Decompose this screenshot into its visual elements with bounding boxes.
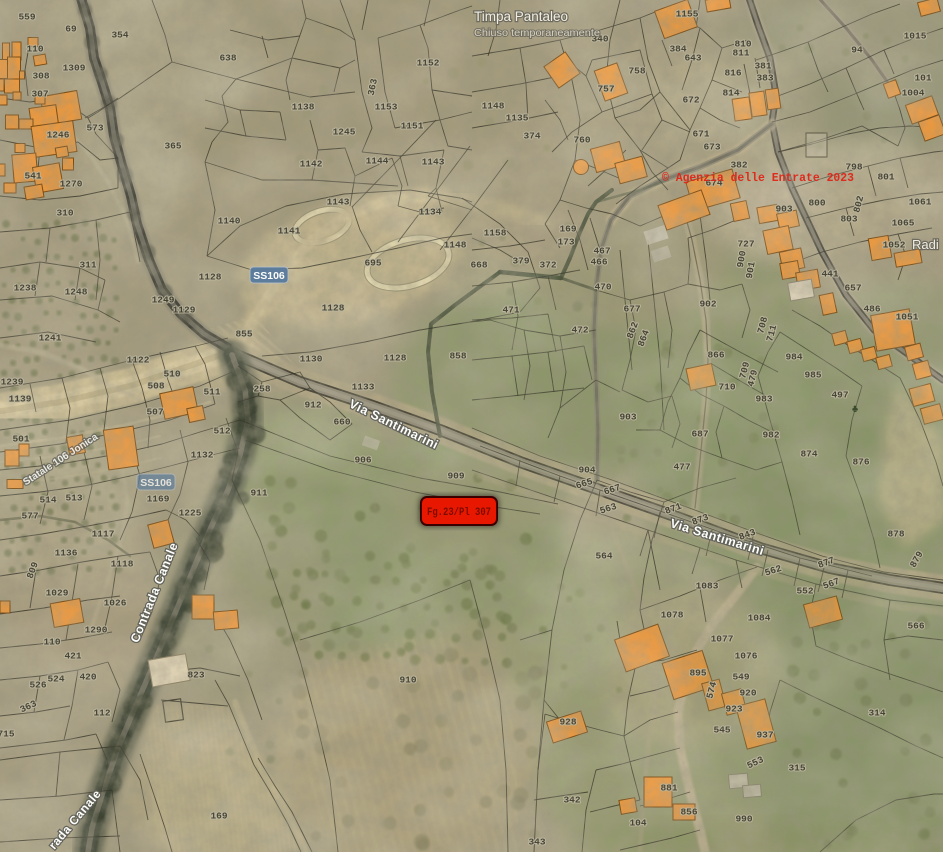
svg-text:577: 577 — [21, 510, 38, 521]
svg-text:1135: 1135 — [506, 112, 529, 123]
svg-text:687: 687 — [691, 428, 708, 439]
svg-text:904: 904 — [578, 464, 595, 475]
svg-text:SS106: SS106 — [253, 270, 285, 282]
svg-text:307: 307 — [31, 88, 48, 99]
svg-text:801: 801 — [877, 171, 894, 182]
svg-text:497: 497 — [831, 389, 848, 400]
svg-text:384: 384 — [669, 43, 686, 54]
svg-text:803: 803 — [840, 213, 857, 224]
svg-text:1122: 1122 — [127, 354, 150, 365]
svg-text:441: 441 — [821, 268, 838, 279]
svg-text:657: 657 — [844, 282, 861, 293]
svg-text:549: 549 — [732, 671, 749, 682]
svg-text:1143: 1143 — [327, 196, 350, 207]
svg-text:983: 983 — [755, 393, 772, 404]
svg-text:SS106: SS106 — [140, 477, 172, 489]
svg-text:816: 816 — [724, 67, 741, 78]
svg-text:912: 912 — [304, 399, 321, 410]
svg-text:1078: 1078 — [661, 609, 684, 620]
svg-text:1290: 1290 — [85, 624, 108, 635]
svg-text:Chiuso temporaneamente: Chiuso temporaneamente — [474, 27, 600, 39]
svg-text:110: 110 — [26, 43, 43, 54]
svg-text:677: 677 — [623, 303, 640, 314]
svg-text:1245: 1245 — [333, 126, 356, 137]
svg-text:486: 486 — [863, 303, 880, 314]
svg-text:308: 308 — [32, 70, 49, 81]
svg-text:Timpa Pantaleo: Timpa Pantaleo — [474, 9, 568, 24]
svg-text:101: 101 — [914, 72, 931, 83]
svg-text:660: 660 — [333, 416, 350, 427]
svg-text:1225: 1225 — [179, 507, 202, 518]
svg-text:1144: 1144 — [366, 155, 389, 166]
svg-text:874: 874 — [800, 448, 817, 459]
svg-text:Radi: Radi — [912, 237, 939, 252]
svg-text:878: 878 — [887, 528, 904, 539]
svg-text:990: 990 — [735, 813, 752, 824]
svg-text:671: 671 — [692, 128, 709, 139]
svg-text:1129: 1129 — [173, 304, 196, 315]
svg-text:1015: 1015 — [904, 30, 927, 41]
svg-text:467: 467 — [593, 245, 610, 256]
svg-text:1065: 1065 — [892, 217, 915, 228]
svg-text:♣: ♣ — [852, 404, 859, 416]
svg-text:758: 758 — [628, 65, 645, 76]
svg-text:Fg.23/Pl 307: Fg.23/Pl 307 — [427, 507, 491, 519]
svg-text:911: 911 — [250, 487, 267, 498]
svg-text:638: 638 — [219, 52, 236, 63]
svg-text:1084: 1084 — [748, 612, 771, 623]
svg-text:1083: 1083 — [696, 580, 719, 591]
svg-text:1151: 1151 — [401, 120, 424, 131]
svg-text:1132: 1132 — [191, 449, 214, 460]
svg-text:1128: 1128 — [322, 302, 345, 313]
svg-text:1140: 1140 — [218, 215, 241, 226]
svg-text:643: 643 — [684, 52, 701, 63]
svg-text:982: 982 — [762, 429, 779, 440]
svg-text:985: 985 — [804, 369, 821, 380]
svg-text:1148: 1148 — [444, 239, 467, 250]
svg-text:881: 881 — [660, 782, 677, 793]
svg-text:1136: 1136 — [55, 547, 78, 558]
svg-text:1029: 1029 — [46, 587, 69, 598]
svg-text:923: 923 — [725, 703, 742, 714]
svg-text:902: 902 — [699, 298, 716, 309]
svg-text:903: 903 — [775, 203, 792, 214]
svg-text:524: 524 — [47, 673, 64, 684]
svg-text:866: 866 — [707, 349, 724, 360]
svg-text:1169: 1169 — [147, 493, 170, 504]
svg-text:757: 757 — [597, 83, 614, 94]
svg-text:1143: 1143 — [422, 156, 445, 167]
svg-text:104: 104 — [629, 817, 646, 828]
svg-text:876: 876 — [852, 456, 869, 467]
svg-text:984: 984 — [785, 351, 802, 362]
svg-text:169: 169 — [559, 223, 576, 234]
svg-text:421: 421 — [64, 650, 81, 661]
svg-text:173: 173 — [557, 236, 574, 247]
svg-text:112: 112 — [93, 707, 110, 718]
svg-text:1152: 1152 — [417, 57, 440, 68]
svg-text:379: 379 — [512, 255, 529, 266]
svg-text:800: 800 — [808, 197, 825, 208]
svg-text:811: 811 — [732, 47, 749, 58]
svg-text:1141: 1141 — [278, 225, 301, 236]
svg-text:573: 573 — [86, 122, 103, 133]
svg-text:559: 559 — [18, 11, 35, 22]
svg-text:1061: 1061 — [909, 196, 932, 207]
svg-text:© Agenzia delle Entrate 2023: © Agenzia delle Entrate 2023 — [662, 171, 854, 185]
svg-text:1239: 1239 — [1, 376, 24, 387]
svg-text:1052: 1052 — [883, 239, 906, 250]
svg-text:383: 383 — [756, 72, 773, 83]
svg-text:1133: 1133 — [352, 381, 375, 392]
svg-text:1238: 1238 — [14, 282, 37, 293]
svg-text:354: 354 — [111, 29, 128, 40]
svg-text:1153: 1153 — [375, 101, 398, 112]
svg-text:814: 814 — [722, 87, 739, 98]
svg-text:311: 311 — [79, 259, 96, 270]
svg-text:1142: 1142 — [300, 158, 323, 169]
svg-text:1134: 1134 — [419, 206, 442, 217]
svg-text:374: 374 — [523, 130, 540, 141]
svg-text:668: 668 — [470, 259, 487, 270]
svg-text:69: 69 — [65, 23, 77, 34]
svg-text:508: 508 — [147, 380, 164, 391]
svg-text:1248: 1248 — [65, 286, 88, 297]
svg-text:1155: 1155 — [676, 8, 699, 19]
svg-text:760: 760 — [573, 134, 590, 145]
svg-text:94: 94 — [851, 44, 863, 55]
svg-text:541: 541 — [24, 170, 41, 181]
svg-text:1309: 1309 — [63, 62, 86, 73]
svg-text:514: 514 — [39, 494, 56, 505]
svg-text:1051: 1051 — [896, 311, 919, 322]
svg-text:920: 920 — [739, 687, 756, 698]
svg-text:910: 910 — [399, 674, 416, 685]
svg-text:1249: 1249 — [152, 294, 175, 305]
svg-text:909: 909 — [447, 470, 464, 481]
svg-text:512: 512 — [213, 425, 230, 436]
svg-text:310: 310 — [56, 207, 73, 218]
svg-text:1139: 1139 — [9, 393, 32, 404]
svg-text:552: 552 — [796, 585, 813, 596]
svg-text:258: 258 — [253, 383, 270, 394]
svg-text:466: 466 — [590, 256, 607, 267]
svg-text:564: 564 — [595, 550, 612, 561]
svg-text:1246: 1246 — [47, 129, 70, 140]
svg-text:314: 314 — [868, 707, 885, 718]
svg-text:1118: 1118 — [111, 558, 134, 569]
svg-text:895: 895 — [689, 667, 706, 678]
svg-text:511: 511 — [203, 386, 220, 397]
svg-text:507: 507 — [146, 406, 163, 417]
svg-text:856: 856 — [680, 806, 697, 817]
svg-text:501: 501 — [12, 433, 29, 444]
svg-text:695: 695 — [364, 257, 381, 268]
svg-text:673: 673 — [703, 141, 720, 152]
svg-text:470: 470 — [594, 281, 611, 292]
svg-text:510: 510 — [163, 368, 180, 379]
svg-text:169: 169 — [210, 810, 227, 821]
svg-text:1128: 1128 — [384, 352, 407, 363]
svg-text:1270: 1270 — [60, 178, 83, 189]
svg-text:903: 903 — [619, 411, 636, 422]
svg-text:1077: 1077 — [711, 633, 734, 644]
svg-text:715: 715 — [0, 728, 15, 739]
svg-text:1158: 1158 — [484, 227, 507, 238]
svg-text:858: 858 — [449, 350, 466, 361]
svg-text:381: 381 — [754, 60, 771, 71]
svg-text:1004: 1004 — [902, 87, 925, 98]
svg-text:343: 343 — [528, 836, 545, 847]
svg-text:382: 382 — [730, 159, 747, 170]
svg-text:420: 420 — [79, 671, 96, 682]
svg-text:1026: 1026 — [104, 597, 127, 608]
svg-text:545: 545 — [713, 724, 730, 735]
svg-text:727: 727 — [737, 238, 754, 249]
svg-text:906: 906 — [354, 454, 371, 465]
svg-text:365: 365 — [164, 140, 181, 151]
svg-text:672: 672 — [682, 94, 699, 105]
svg-text:1117: 1117 — [92, 528, 115, 539]
svg-text:526: 526 — [29, 679, 46, 690]
svg-text:477: 477 — [673, 461, 690, 472]
svg-text:823: 823 — [187, 669, 204, 680]
svg-text:937: 937 — [756, 729, 773, 740]
svg-text:315: 315 — [788, 762, 805, 773]
svg-text:1130: 1130 — [300, 353, 323, 364]
svg-text:1241: 1241 — [39, 332, 62, 343]
svg-text:710: 710 — [718, 381, 735, 392]
svg-text:372: 372 — [539, 259, 556, 270]
svg-text:342: 342 — [563, 794, 580, 805]
svg-text:1148: 1148 — [482, 100, 505, 111]
svg-text:110: 110 — [43, 636, 60, 647]
svg-text:1076: 1076 — [735, 650, 758, 661]
svg-text:855: 855 — [235, 328, 252, 339]
svg-text:1128: 1128 — [199, 271, 222, 282]
svg-text:566: 566 — [907, 620, 924, 631]
svg-text:928: 928 — [559, 716, 576, 727]
svg-text:513: 513 — [65, 492, 82, 503]
svg-text:1138: 1138 — [292, 101, 315, 112]
svg-text:472: 472 — [571, 324, 588, 335]
svg-text:471: 471 — [502, 304, 519, 315]
